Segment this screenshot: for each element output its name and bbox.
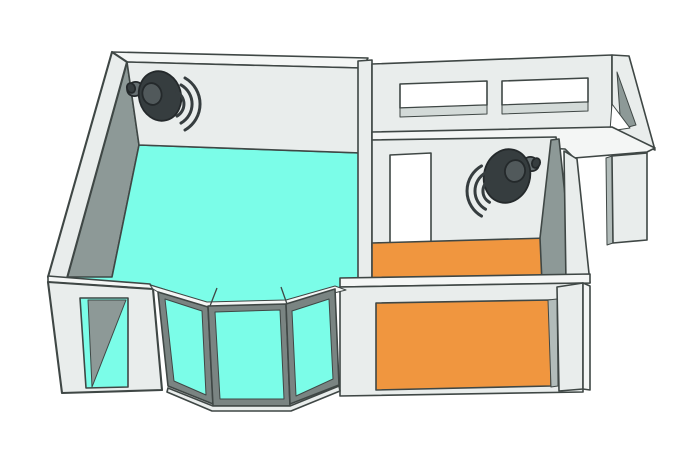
right-front-opening [376,300,551,390]
corridor-window-1 [400,81,487,108]
bay-window-center-glass [215,310,284,399]
divider-wall-edge [358,60,372,291]
front-corner-post-side [583,283,590,390]
bay-window-right-glass [292,299,333,396]
floorplan-diagram [0,0,700,461]
corridor-window-2 [502,78,588,105]
floorplan-canvas [0,0,700,461]
right-room-door-opening [390,153,431,244]
front-corner-post [557,283,583,391]
entry-right-post [612,153,647,243]
entry-left-post [564,151,590,283]
